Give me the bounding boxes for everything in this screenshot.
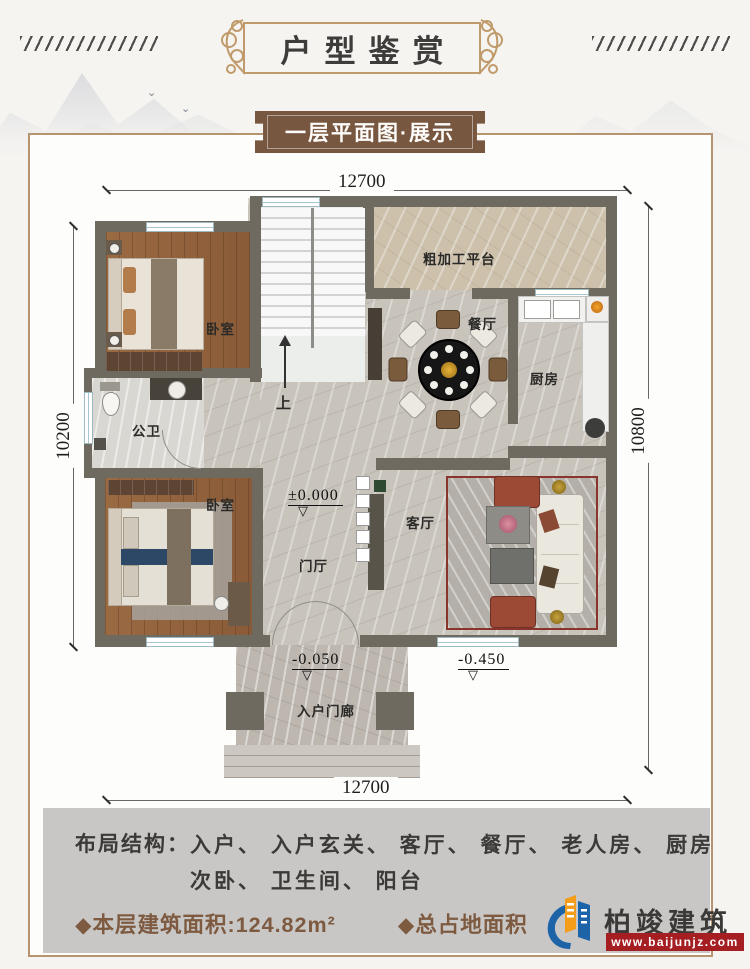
cabinet-cell bbox=[356, 548, 370, 562]
area-info: ◆本层建筑面积:124.82m² ◆总占地面积 bbox=[75, 908, 528, 939]
living-label: 客厅 bbox=[406, 512, 435, 532]
dining-table bbox=[418, 339, 480, 401]
page-title: 户型鉴赏 bbox=[268, 26, 457, 71]
stair-rail bbox=[311, 208, 314, 348]
foyer-label: 门厅 bbox=[299, 555, 328, 575]
lamp-icon bbox=[109, 243, 120, 254]
total-area-text: ◆总占地面积 bbox=[398, 908, 528, 939]
wardrobe bbox=[106, 352, 202, 371]
dining-label: 餐厅 bbox=[468, 313, 497, 333]
vanity bbox=[150, 378, 202, 400]
dining-chair bbox=[436, 410, 460, 429]
kitchen-label: 厨房 bbox=[530, 368, 559, 388]
wall bbox=[364, 196, 617, 207]
armchair bbox=[490, 596, 536, 628]
dim-top: 12700 bbox=[330, 171, 394, 193]
wall bbox=[376, 458, 510, 470]
armchair bbox=[494, 476, 540, 508]
building-logo-icon bbox=[540, 895, 606, 957]
stove bbox=[586, 296, 609, 322]
dining-chair bbox=[436, 310, 460, 329]
plant-icon bbox=[550, 610, 564, 624]
sofa bbox=[536, 494, 584, 614]
dining-chair bbox=[389, 358, 408, 382]
bird-icon: ⌄ bbox=[181, 102, 190, 115]
elevation-terrace: -0.450▽ bbox=[458, 651, 509, 680]
layout-line1: 入户、 入户玄关、 客厅、 餐厅、 老人房、 厨房 bbox=[190, 828, 714, 864]
lamp-icon bbox=[109, 335, 120, 346]
art-panel bbox=[486, 506, 530, 544]
window bbox=[84, 392, 93, 444]
cabinet-cell bbox=[356, 494, 370, 508]
wall bbox=[84, 468, 262, 478]
dim-line-bottom bbox=[106, 800, 628, 801]
wall bbox=[472, 288, 512, 299]
brand-logo: 柏竣建筑 www.baijunjz.com bbox=[540, 895, 750, 959]
layout-structure: 布局结构： 入户、 入户玄关、 客厅、 餐厅、 老人房、 厨房 次卧、 卫生间、… bbox=[75, 828, 714, 900]
desk bbox=[228, 582, 250, 626]
wall bbox=[252, 468, 263, 636]
porch-column bbox=[376, 692, 414, 730]
platform-label: 粗加工平台 bbox=[423, 248, 496, 268]
brand-website: www.baijunjz.com bbox=[606, 933, 744, 951]
toilet-tank bbox=[100, 382, 120, 391]
floor-lamp bbox=[94, 438, 106, 450]
cabinet-cell bbox=[356, 512, 370, 526]
coffee-table bbox=[490, 548, 534, 584]
hatch-decoration-right bbox=[592, 36, 730, 51]
bathroom-label: 公卫 bbox=[132, 420, 161, 440]
sideboard bbox=[368, 308, 382, 380]
poster-page: ⌄ ⌄ 户型鉴赏 一层平面图·展示 bbox=[0, 0, 750, 969]
sofa-pillow bbox=[539, 565, 559, 588]
porch-column bbox=[226, 692, 264, 730]
window bbox=[262, 197, 320, 207]
bed bbox=[108, 258, 204, 350]
flame-icon bbox=[591, 301, 603, 313]
section-subtitle: 一层平面图·展示 bbox=[285, 117, 455, 147]
porch-steps bbox=[224, 745, 420, 778]
bedroom-bottom-label: 卧室 bbox=[206, 494, 235, 514]
wall bbox=[366, 288, 410, 299]
bird-icon: ⌄ bbox=[147, 86, 156, 99]
scroll-ornament-icon bbox=[471, 16, 509, 78]
stair-arrow bbox=[284, 344, 286, 388]
table-centerpiece bbox=[441, 362, 457, 378]
wall bbox=[508, 446, 617, 458]
dim-line-right bbox=[648, 206, 649, 770]
dim-bottom: 12700 bbox=[334, 777, 398, 799]
window bbox=[146, 222, 214, 232]
wall bbox=[95, 221, 106, 378]
section-banner: 一层平面图·展示 bbox=[255, 111, 485, 153]
sofa-pillow bbox=[538, 509, 559, 533]
dim-left: 10200 bbox=[53, 404, 75, 468]
kitchen-sink-counter bbox=[518, 296, 586, 323]
elevation-porch: -0.050▽ bbox=[292, 651, 343, 680]
porch-label: 入户门廊 bbox=[297, 700, 355, 720]
shoe-cabinet bbox=[368, 494, 384, 590]
layout-label: 布局结构： bbox=[75, 828, 190, 900]
hatch-decoration-left bbox=[20, 36, 158, 51]
wardrobe bbox=[108, 480, 194, 495]
desk-chair bbox=[214, 596, 229, 611]
elevation-foyer: ±0.000▽ bbox=[288, 487, 343, 516]
wall bbox=[95, 478, 105, 636]
cabinet-cell bbox=[356, 530, 370, 544]
stair-up-label: 上 bbox=[276, 392, 292, 413]
floor-area-text: ◆本层建筑面积:124.82m² bbox=[75, 908, 336, 939]
bed bbox=[108, 508, 214, 606]
bedroom-top-label: 卧室 bbox=[206, 318, 235, 338]
scroll-ornament-icon bbox=[215, 16, 253, 78]
window bbox=[437, 637, 519, 647]
wall bbox=[250, 196, 261, 382]
plant-icon bbox=[552, 480, 566, 494]
dim-right: 10800 bbox=[628, 399, 650, 463]
plant-icon bbox=[374, 480, 386, 492]
window bbox=[146, 637, 214, 647]
kitchen-counter bbox=[582, 322, 609, 432]
page-title-frame: 户型鉴赏 bbox=[243, 22, 481, 74]
cabinet-cell bbox=[356, 476, 370, 490]
wok-icon bbox=[585, 418, 605, 438]
dining-chair bbox=[489, 358, 508, 382]
wall bbox=[508, 292, 518, 424]
